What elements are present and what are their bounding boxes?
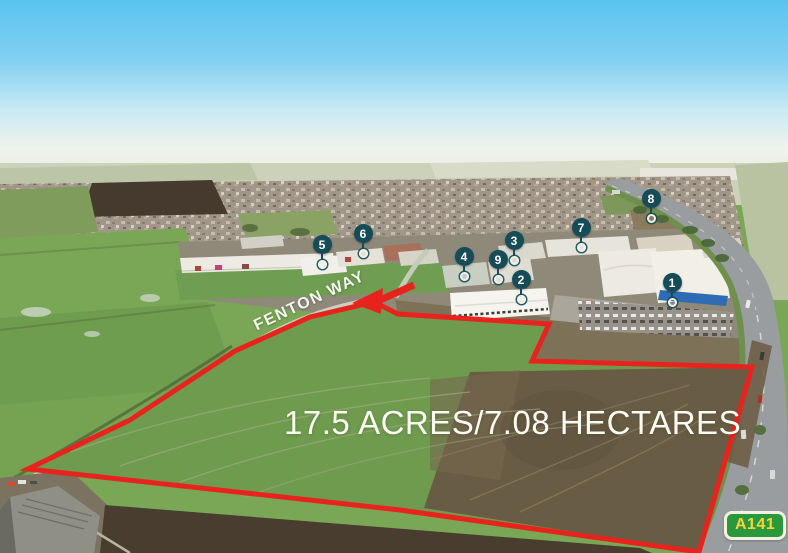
marker-location-ring <box>460 272 469 281</box>
route-a141-badge: A141 <box>724 511 786 540</box>
area-size-label: 17.5 ACRES/7.08 HECTARES <box>284 404 741 442</box>
marker-number-bubble: 1 <box>663 273 682 292</box>
marker-number-bubble: 5 <box>313 235 332 254</box>
marker-number-bubble: 9 <box>489 250 508 269</box>
marker-location-ring <box>359 249 368 258</box>
marker-location-ring <box>668 298 677 307</box>
aerial-site-photo: 17.5 ACRES/7.08 HECTARES FENTON WAY A141… <box>0 0 788 553</box>
marker-1: 1 <box>662 273 682 307</box>
marker-location-ring <box>510 256 519 265</box>
marker-number-bubble: 2 <box>512 270 531 289</box>
marker-7: 7 <box>571 218 591 252</box>
marker-6: 6 <box>353 224 373 258</box>
marker-number-bubble: 7 <box>572 218 591 237</box>
marker-number-bubble: 6 <box>354 224 373 243</box>
marker-8: 8 <box>641 189 661 223</box>
marker-location-ring <box>494 275 503 284</box>
sky <box>0 0 788 190</box>
marker-location-ring <box>647 214 656 223</box>
marker-9: 9 <box>488 250 508 284</box>
marker-5: 5 <box>312 235 332 269</box>
marker-number-bubble: 4 <box>455 247 474 266</box>
marker-location-ring <box>577 243 586 252</box>
marker-4: 4 <box>454 247 474 281</box>
marker-2: 2 <box>511 270 531 304</box>
marker-number-bubble: 8 <box>642 189 661 208</box>
marker-location-ring <box>517 295 526 304</box>
marker-number-bubble: 3 <box>505 231 524 250</box>
marker-location-ring <box>318 260 327 269</box>
